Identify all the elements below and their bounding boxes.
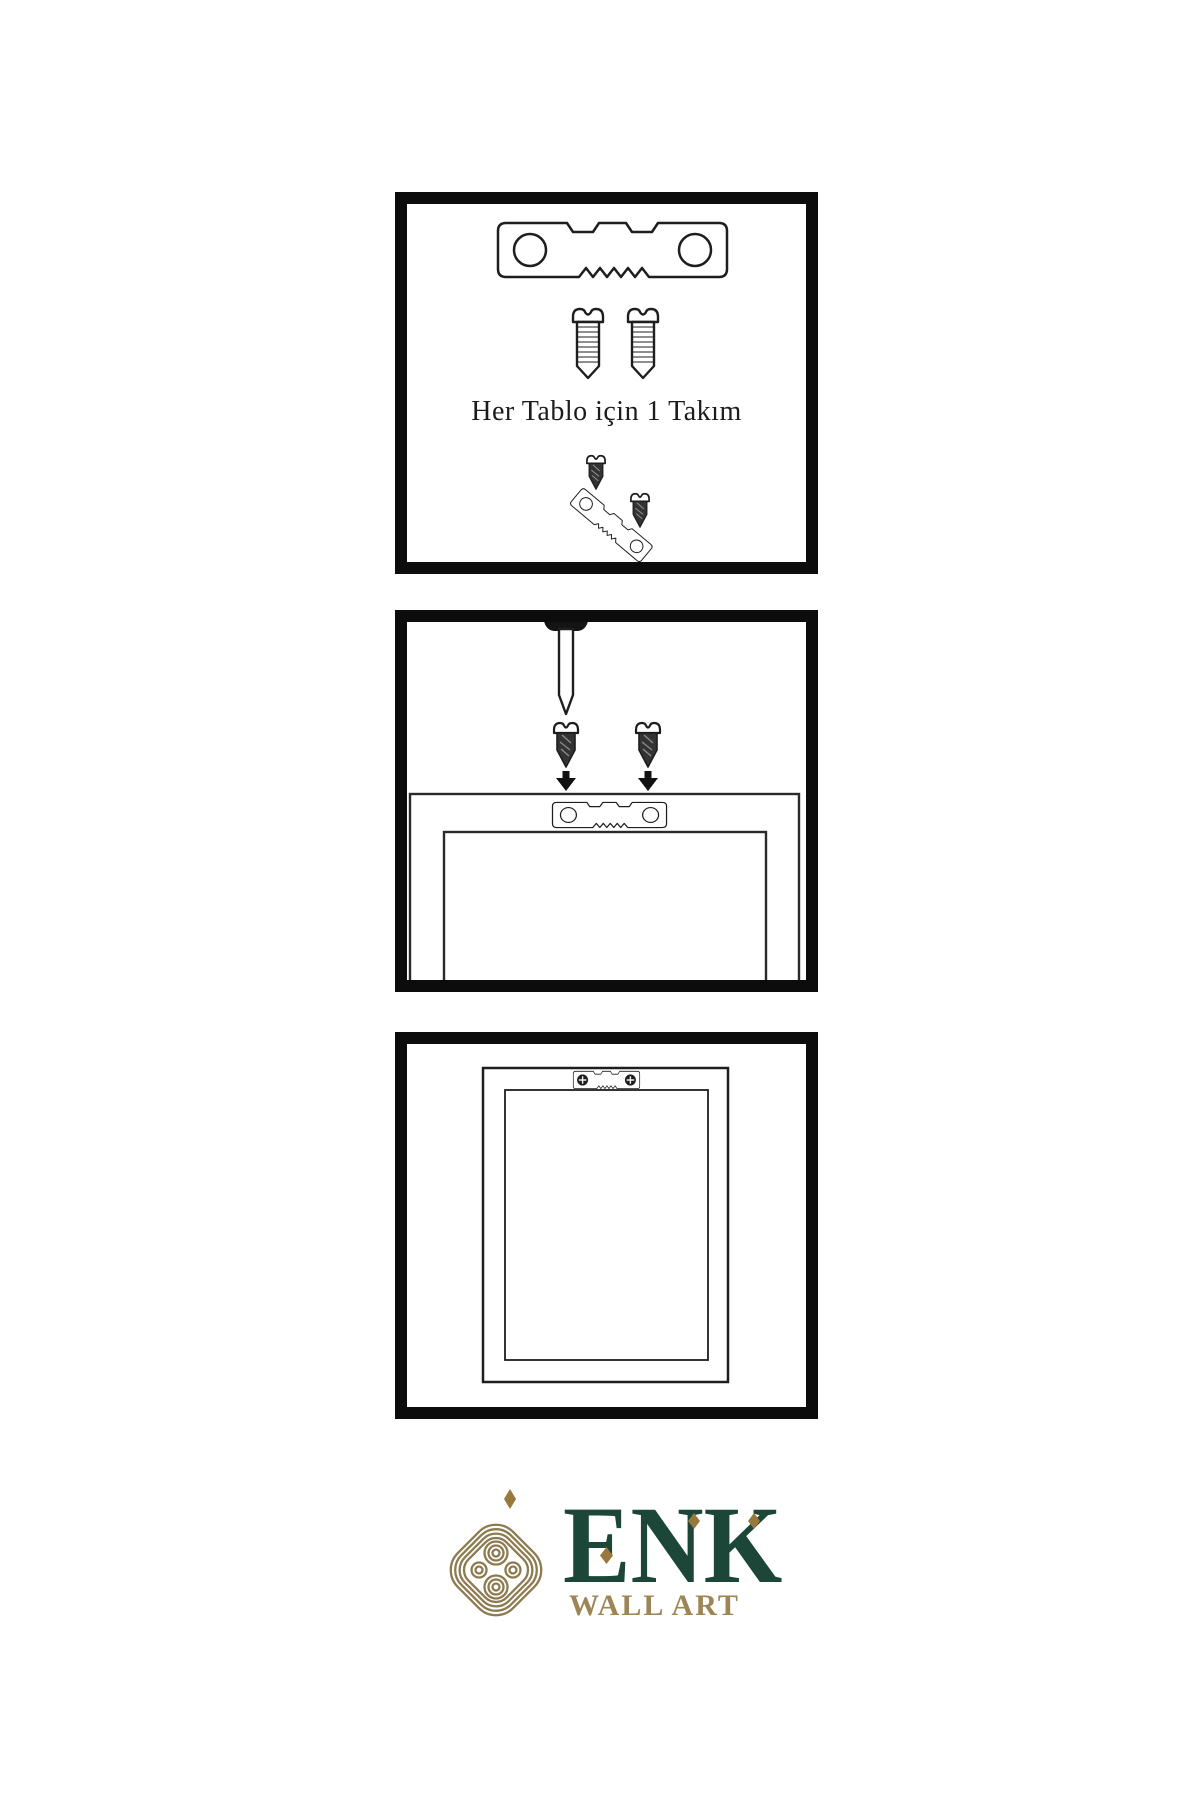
interlaced-knot-icon bbox=[436, 1486, 556, 1632]
cross-head-screw-icon bbox=[577, 1075, 588, 1086]
down-arrow-icon bbox=[638, 771, 658, 791]
screw-icon bbox=[587, 456, 605, 489]
sawtooth-hanger-icon bbox=[498, 223, 727, 277]
hardware-kit-drawing bbox=[407, 204, 806, 562]
frame-inner bbox=[505, 1090, 708, 1360]
screw-icon bbox=[573, 309, 603, 378]
brand-tagline: WALL ART bbox=[569, 1591, 740, 1621]
hung-frame-drawing bbox=[407, 1044, 807, 1408]
sawtooth-hanger-icon bbox=[552, 802, 666, 827]
hanging-panel bbox=[395, 1032, 818, 1419]
hardware-kit-panel: Her Tablo için 1 Takım bbox=[395, 192, 818, 574]
screw-icon bbox=[636, 723, 660, 767]
mounting-drawing bbox=[407, 622, 806, 980]
cross-head-screw-icon bbox=[625, 1075, 636, 1086]
kit-caption: Her Tablo için 1 Takım bbox=[407, 396, 806, 428]
screw-icon bbox=[554, 723, 578, 767]
screw-icon bbox=[628, 309, 658, 378]
frame-back-inner bbox=[444, 832, 766, 980]
nail-icon bbox=[544, 622, 588, 714]
brand-wordmark: ENK bbox=[563, 1490, 782, 1600]
instruction-sheet: Her Tablo için 1 Takım bbox=[0, 0, 1200, 1800]
down-arrow-icon bbox=[556, 771, 576, 791]
mounting-panel bbox=[395, 610, 818, 992]
screw-icon bbox=[631, 494, 649, 527]
